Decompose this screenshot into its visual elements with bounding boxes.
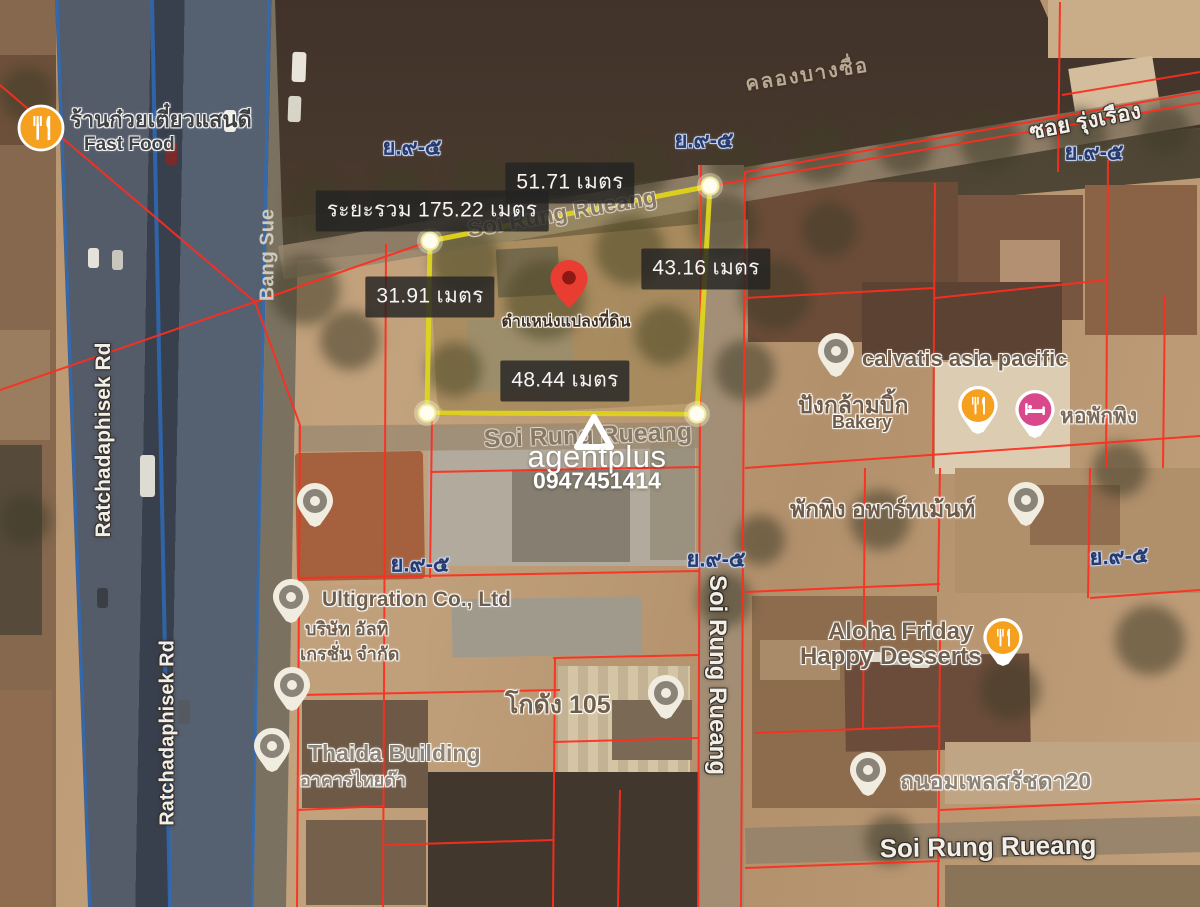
road-label-ratchadaphisek-1: Ratchadaphisek Rd [92,343,116,538]
measurement-chip-right-side: 43.16 เมตร [641,249,770,290]
measurement-chip-total: ระยะรวม 175.22 เมตร [316,191,549,232]
plot-pin-label: ตำแหน่งแปลงที่ดิน [502,310,631,335]
poi-sublabel-aloha-friday[interactable]: Happy Desserts [800,643,981,671]
poi-label-hopak-ping[interactable]: หอพักพิง [1060,400,1137,433]
watermark-phone: 0947451414 [533,468,661,495]
poi-label-calvatis[interactable]: calvatis asia pacific [862,346,1067,372]
zone-label-4: ย.๙-๕ [390,547,449,582]
poi-sublabel-bakery[interactable]: Bakery [832,412,892,433]
poi-sublabel-ultigration-2[interactable]: เกรชั่น จำกัด [300,639,399,668]
poi-label-warehouse-105[interactable]: โกดัง 105 [505,685,611,725]
road-label-soi-rung-rueang-vertical: Soi Rung Rueang [703,575,731,775]
poi-label-ultigration[interactable]: Ultigration Co., Ltd [322,588,511,612]
measurement-chip-bottom-side: 48.44 เมตร [500,361,629,402]
place-pin-icon[interactable] [648,675,684,719]
zone-label-5: ย.๙-๕ [686,542,745,577]
measurement-chip-left-side: 31.91 เมตร [365,277,494,318]
poi-label-thaida[interactable]: Thaida Building [308,740,481,767]
poi-label-fastfood[interactable]: ร้านก๋วยเตี๋ยวแสนดี [70,102,252,137]
restaurant-icon[interactable] [17,104,65,152]
zone-label-1: ย.๙-๕ [382,130,441,165]
zone-label-3: ย.๙-๕ [1064,135,1123,170]
poi-label-thanom-place[interactable]: ถนอมเพลสรัชดา20 [900,764,1091,800]
place-pin-icon[interactable] [274,667,310,711]
restaurant-icon[interactable] [983,618,1023,666]
poi-sublabel-thaida[interactable]: อาคารไทยด๊า [300,765,406,794]
zone-label-2: ย.๙-๕ [674,123,733,158]
restaurant-icon[interactable] [958,386,998,434]
place-pin-icon[interactable] [297,483,333,527]
plot-location-pin-icon[interactable] [550,260,588,308]
poi-sublabel-fastfood[interactable]: Fast Food [84,134,175,156]
zone-label-6: ย.๙-๕ [1089,537,1150,575]
poi-label-aloha-friday[interactable]: Aloha Friday [828,618,973,646]
poi-label-phakping-apartment[interactable]: พักพิง อพาร์ทเม้นท์ [790,492,975,528]
place-pin-icon[interactable] [273,579,309,623]
place-pin-icon[interactable] [818,333,854,377]
place-pin-icon[interactable] [1008,482,1044,526]
road-label-bang-sue: Bang Sue [257,209,280,301]
place-pin-icon[interactable] [254,728,290,772]
road-label-ratchadaphisek-2: Ratchadaphisek Rd [157,640,180,826]
place-pin-icon[interactable] [850,752,886,796]
road-label-soi-rung-rueang-bottom: Soi Rung Rueang [879,830,1096,865]
satellite-map[interactable]: Ratchadaphisek Rd Ratchadaphisek Rd Bang… [0,0,1200,907]
hotel-bed-icon[interactable] [1015,390,1055,438]
